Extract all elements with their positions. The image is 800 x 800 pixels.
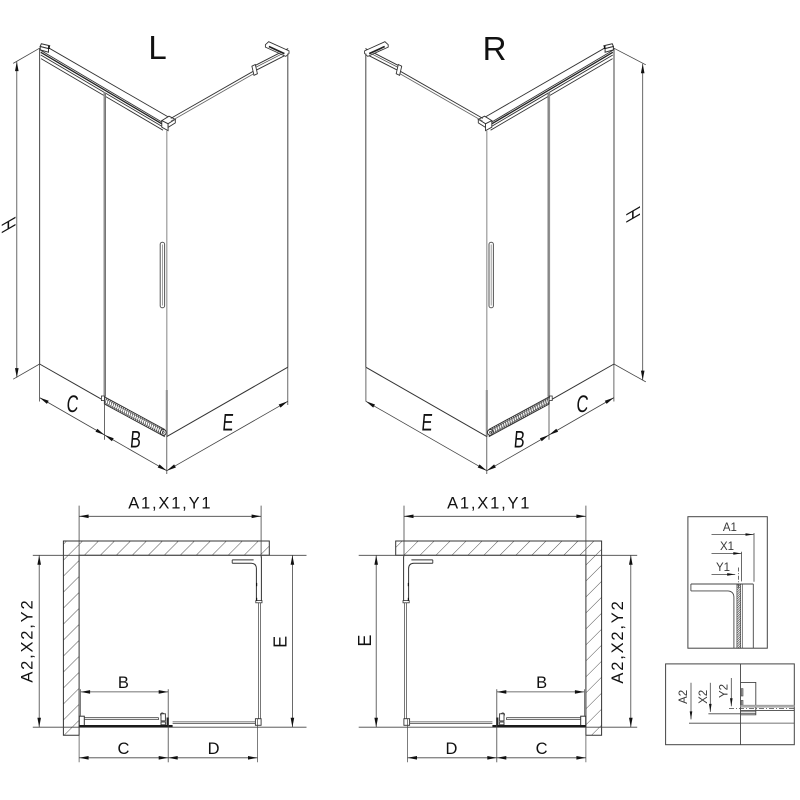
svg-text:A2,X2,Y2: A2,X2,Y2: [19, 599, 37, 683]
svg-text:E: E: [270, 636, 290, 648]
svg-text:D: D: [445, 740, 457, 758]
svg-text:X2: X2: [698, 690, 710, 704]
svg-text:A1,X1,Y1: A1,X1,Y1: [447, 494, 531, 512]
svg-text:Y1: Y1: [716, 562, 730, 574]
svg-text:X1: X1: [720, 541, 734, 553]
svg-text:L: L: [148, 29, 166, 66]
svg-text:E: E: [355, 635, 375, 647]
svg-text:Y2: Y2: [719, 684, 731, 698]
svg-text:C: C: [536, 740, 548, 758]
svg-text:D: D: [208, 740, 220, 758]
svg-text:A2,X2,Y2: A2,X2,Y2: [609, 599, 627, 683]
svg-text:A1,X1,Y1: A1,X1,Y1: [128, 494, 212, 512]
svg-text:B: B: [118, 674, 129, 692]
svg-text:C: C: [117, 740, 129, 758]
svg-text:A2: A2: [678, 690, 690, 704]
svg-text:C: C: [65, 391, 79, 418]
svg-text:C: C: [575, 391, 589, 418]
svg-text:B: B: [536, 674, 547, 692]
svg-text:A1: A1: [723, 522, 737, 534]
svg-text:R: R: [483, 30, 507, 67]
